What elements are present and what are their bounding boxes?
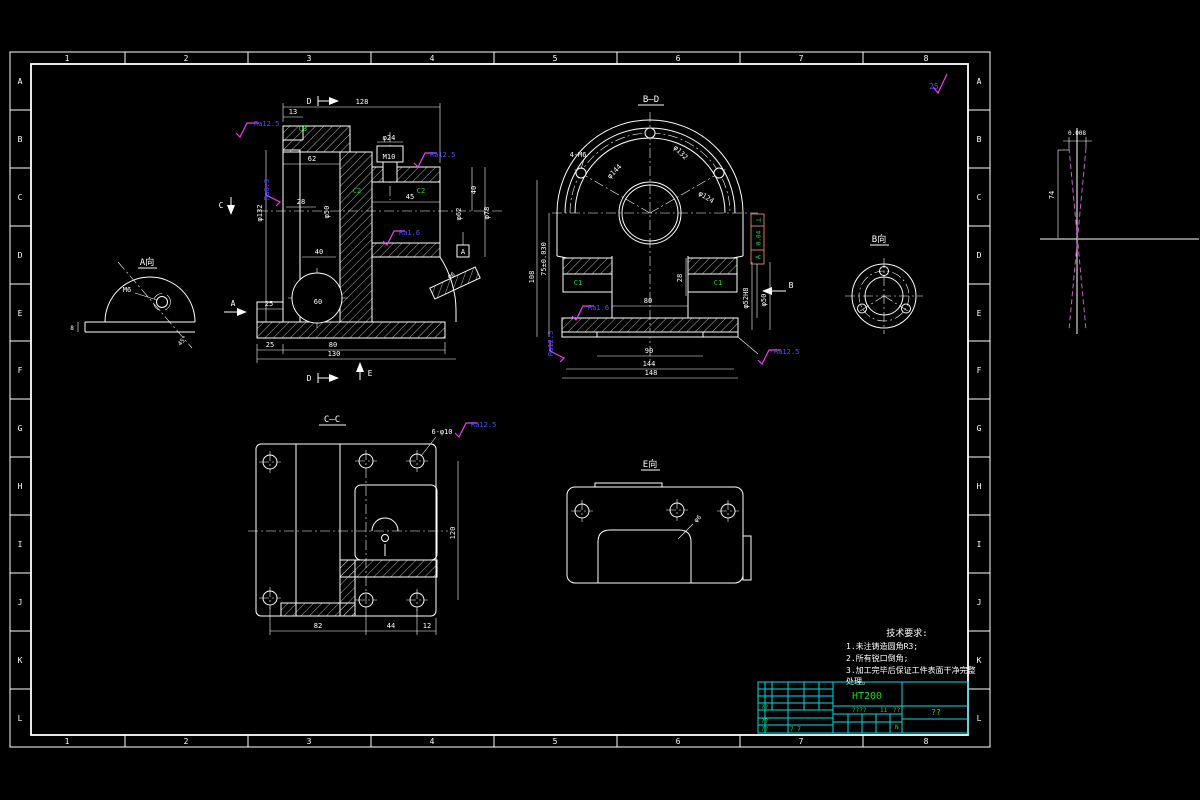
row-label: D [977, 251, 982, 260]
bolt-hole [902, 304, 911, 313]
section-b-d: B—D 4-M6 φ144 φ132 φ124 75±0.0 [528, 95, 799, 378]
dim-144: 144 [643, 360, 656, 368]
dim-148: 148 [645, 369, 658, 377]
note-line-4: 处理。 [846, 676, 870, 686]
taper-diagram: 0.008 74 [1040, 128, 1199, 334]
view-a-title: A向 [140, 256, 154, 268]
taper-tolerance: 0.008 [1068, 130, 1086, 137]
note-line-1: 1.未注铸造圆角R3; [846, 641, 918, 651]
tb-cell: ?? [761, 726, 769, 733]
callout-4-m6: 4-M6 [570, 151, 587, 159]
dim-phi52h8: φ52H8 [742, 287, 750, 308]
section-label-d-top: D [307, 97, 312, 106]
finish-bd-mid: Ra1.6 [588, 304, 609, 312]
dim-120: 120 [449, 527, 457, 540]
section-bd-title: B—D [643, 95, 659, 105]
dim-phi24: φ24 [383, 134, 396, 142]
ruler-rows-left: A B C D E F G H I J K L [18, 77, 23, 723]
col-label: 1 [65, 737, 70, 746]
m6-thread-hole [157, 297, 168, 308]
row-label: E [18, 309, 23, 318]
section-label-c: C [219, 201, 224, 210]
finish-ra12.5: Ra12.5 [254, 120, 279, 128]
col-label: 7 [799, 737, 804, 746]
view-arrow-a: A [231, 299, 236, 308]
dim-108: 108 [528, 271, 536, 284]
dim-phi132: φ132 [672, 144, 690, 162]
section-cc-title: C—C [324, 415, 340, 425]
dim-128: 128 [356, 98, 369, 106]
row-label: D [18, 251, 23, 260]
chamfer-c2a: C2 [353, 187, 361, 195]
col-label: 2 [184, 737, 189, 746]
view-front-section: D D E C A 128 13 62 28 φ50 45 40 [219, 96, 502, 383]
gdt-symbol: ⊥ [755, 218, 763, 222]
dim-phi62: φ62 [455, 208, 463, 221]
dim-40-right: 40 [470, 186, 478, 194]
row-label: F [18, 366, 23, 375]
row-label: F [977, 366, 982, 375]
row-label: B [977, 135, 982, 144]
chamfer-c1a: C1 [574, 279, 582, 287]
e-holes [571, 499, 739, 522]
row-label: B [18, 135, 23, 144]
col-label: 8 [924, 737, 929, 746]
view-a: A向 M6 8 45° [70, 256, 195, 348]
chamfer-c3: C3 [299, 125, 307, 133]
col-label: 6 [676, 737, 681, 746]
dim-44: 44 [387, 622, 395, 630]
dim-12: 12 [423, 622, 431, 630]
dim-45: 45 [406, 193, 414, 201]
notes-title: 技术要求: [886, 627, 927, 639]
row-label: H [18, 482, 23, 491]
col-label: 7 [799, 54, 804, 63]
row-label: G [977, 424, 982, 433]
chamfer-c2b: C2 [417, 187, 425, 195]
dim-28-bd: 28 [676, 274, 684, 282]
row-label: A [977, 77, 982, 86]
col-label: 4 [430, 54, 435, 63]
ruler-columns-top: 1 2 3 4 5 6 7 8 [65, 54, 929, 63]
dim-phi78: φ78 [483, 207, 491, 220]
row-label: H [977, 482, 982, 491]
tb-cell: ?? [761, 718, 769, 725]
title-block: HT200 ?? ?? ???? 11 ?? N ?? ?? 7 7 [758, 682, 968, 733]
general-roughness-symbol: 25 [929, 74, 947, 93]
dim-phi132: φ132 [256, 205, 264, 222]
dim-82: 82 [314, 622, 322, 630]
datum-a-frame: A [457, 232, 469, 257]
row-label: I [977, 540, 982, 549]
finish-cc: Ra12.5 [471, 421, 496, 429]
tb-cell: 11 [880, 707, 888, 714]
view-b: B向 [845, 233, 923, 334]
finish-ra12.5b: Ra12.5 [430, 151, 455, 159]
col-label: 8 [924, 54, 929, 63]
view-e: E向 φ6 [567, 458, 751, 583]
col-label: 3 [307, 737, 312, 746]
dim-60: 60 [314, 298, 322, 306]
dim-80-bd: 80 [644, 297, 652, 305]
chamfer-c1b: C1 [714, 279, 722, 287]
section-label-e: E [368, 369, 373, 378]
gdt-datum: A [755, 254, 763, 259]
note-line-2: 2.所有锐口倒角; [846, 653, 908, 663]
dim-25b: 25 [266, 341, 274, 349]
row-label: C [977, 193, 982, 202]
row-label: J [977, 598, 982, 607]
dim-40: 40 [315, 248, 323, 256]
col-label: 4 [430, 737, 435, 746]
col-label: 2 [184, 54, 189, 63]
view-b-title: B向 [872, 233, 886, 245]
note-line-3: 3.加工完毕后保证工件表面干净完整 [846, 665, 976, 675]
row-label: E [977, 309, 982, 318]
callout-phi6: φ6 [693, 514, 703, 524]
technical-notes: 技术要求: 1.未注铸造圆角R3; 2.所有锐口倒角; 3.加工完毕后保证工件表… [846, 627, 976, 686]
finish-ra1.6: Ra1.6 [399, 229, 420, 237]
m6-bolt-hole [645, 128, 655, 138]
cad-application-canvas: 1 2 3 4 5 6 7 8 1 2 3 4 5 6 7 8 A B C D … [0, 0, 1200, 800]
row-label: G [18, 424, 23, 433]
row-label: A [18, 77, 23, 86]
row-label: L [18, 714, 23, 723]
section-label-d-bottom: D [307, 374, 312, 383]
row-label: C [18, 193, 23, 202]
dim-phi144: φ144 [606, 163, 624, 181]
datum-letter: A [461, 248, 466, 256]
dim-phi50-bd: φ50 [760, 294, 768, 307]
row-label: K [18, 656, 23, 665]
dim-8: 8 [70, 325, 74, 332]
finish-bd-left: Ra12.5 [547, 331, 555, 356]
tb-cell: ???? [852, 707, 867, 714]
dim-m10: M10 [383, 153, 396, 161]
dim-phi50: φ50 [323, 206, 331, 219]
dim-75: 75±0.030 [540, 242, 548, 276]
view-arrow-b: B [789, 281, 794, 290]
row-label: J [18, 598, 23, 607]
col-label: 5 [553, 54, 558, 63]
m6-bolt-hole [714, 168, 724, 178]
tb-cell: ?? [761, 704, 769, 711]
col-label: 3 [307, 54, 312, 63]
col-label: 1 [65, 54, 70, 63]
tb-cell: 7 7 [790, 726, 801, 733]
dim-28: 28 [297, 198, 305, 206]
dim-phi124: φ124 [697, 189, 716, 205]
finish-bd-right: Ra12.5 [774, 348, 799, 356]
finish-ra6.3: Ra6.3 [263, 179, 271, 200]
dim-62: 62 [308, 155, 316, 163]
roughness-value: 25 [929, 82, 939, 91]
section-c-c: C—C 6-φ10 Ra12.5 82 44 1 [248, 415, 496, 635]
dim-45deg: 45° [177, 335, 189, 348]
col-label: 5 [553, 737, 558, 746]
ruler-columns-bottom: 1 2 3 4 5 6 7 8 [65, 737, 929, 746]
bolt-hole [858, 304, 867, 313]
drawing-number: ?? [931, 708, 941, 717]
tb-cell: ?? [893, 707, 901, 714]
gdt-tolerance: 0.04 [756, 230, 763, 245]
tb-cell: N [895, 724, 899, 731]
dim-90: 90 [645, 347, 653, 355]
row-label: I [18, 540, 23, 549]
cad-drawing: 1 2 3 4 5 6 7 8 1 2 3 4 5 6 7 8 A B C D … [0, 0, 1200, 800]
dim-25: 25 [265, 300, 273, 308]
dim-13: 13 [289, 108, 297, 116]
sheet-frame: 1 2 3 4 5 6 7 8 1 2 3 4 5 6 7 8 A B C D … [10, 52, 990, 747]
callout-6-phi10: 6-φ10 [431, 428, 452, 436]
ruler-rows-right: A B C D E F G H I J K L [977, 77, 982, 723]
row-label: K [977, 656, 982, 665]
material-ht200: HT200 [852, 691, 882, 702]
taper-height-74: 74 [1048, 191, 1056, 199]
m6-bolt-hole [576, 168, 586, 178]
view-e-title: E向 [643, 458, 657, 470]
dim-80: 80 [329, 341, 337, 349]
dim-130: 130 [328, 350, 341, 358]
col-label: 6 [676, 54, 681, 63]
row-label: L [977, 714, 982, 723]
thread-callout-m6: M6 [123, 286, 131, 294]
